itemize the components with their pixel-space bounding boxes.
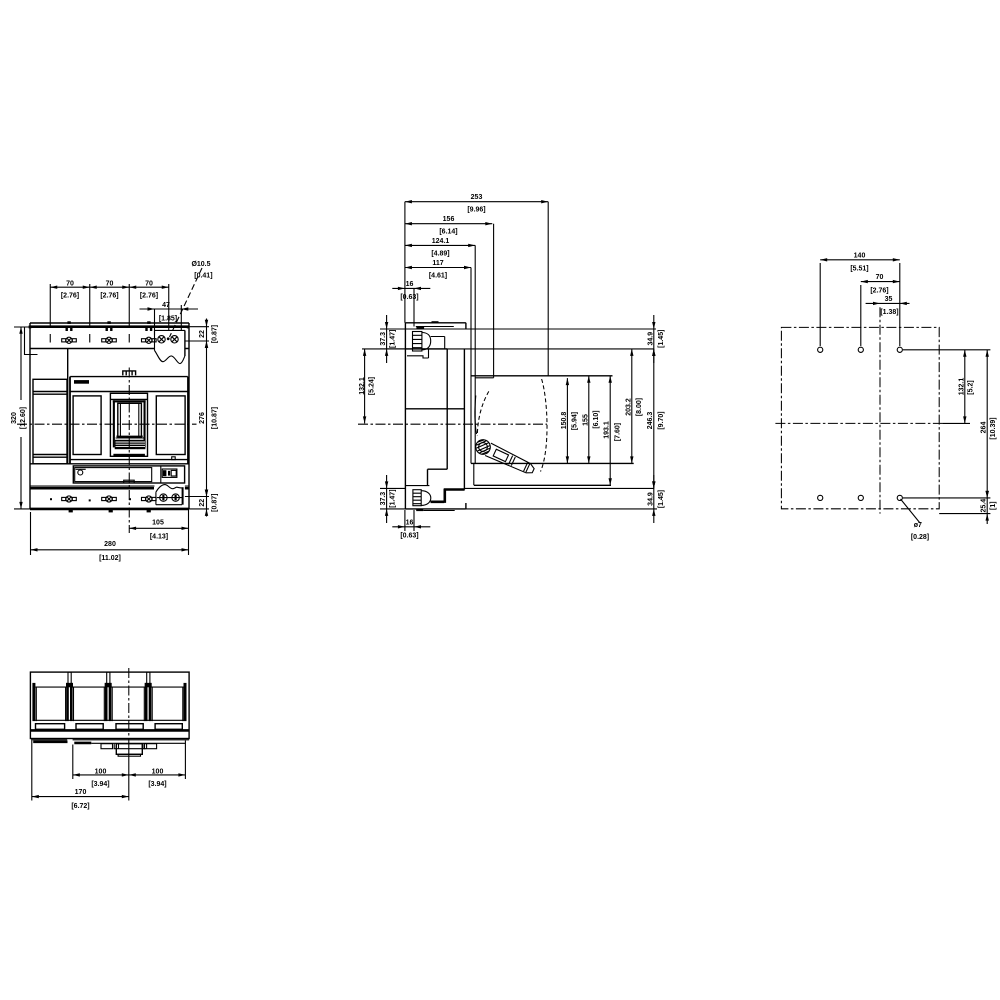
svg-text:[11.02]: [11.02] xyxy=(99,555,121,562)
svg-text:[1]: [1] xyxy=(990,501,997,510)
svg-text:[0.87]: [0.87] xyxy=(211,325,218,343)
svg-text:253: 253 xyxy=(471,194,483,201)
svg-text:100: 100 xyxy=(152,768,164,775)
svg-text:[3.94]: [3.94] xyxy=(148,781,166,788)
svg-text:156: 156 xyxy=(443,216,455,223)
svg-text:193.1: 193.1 xyxy=(604,421,611,439)
svg-text:ø7: ø7 xyxy=(914,522,922,529)
svg-text:[0.28]: [0.28] xyxy=(911,534,929,541)
svg-text:[1.85]: [1.85] xyxy=(159,315,177,322)
svg-text:34.9: 34.9 xyxy=(647,492,654,506)
svg-text:124.1: 124.1 xyxy=(432,238,450,245)
svg-text:25.4: 25.4 xyxy=(981,499,988,513)
svg-text:[2.76]: [2.76] xyxy=(140,292,158,299)
svg-text:[6.10]: [6.10] xyxy=(593,410,600,428)
svg-text:150.8: 150.8 xyxy=(561,412,568,430)
svg-text:16: 16 xyxy=(406,281,414,288)
svg-text:35: 35 xyxy=(885,296,893,303)
svg-text:70: 70 xyxy=(66,281,74,288)
svg-text:132.1: 132.1 xyxy=(359,377,366,395)
svg-text:[3.94]: [3.94] xyxy=(91,781,109,788)
svg-text:264: 264 xyxy=(981,422,988,434)
svg-text:[5.51]: [5.51] xyxy=(850,266,868,273)
svg-text:37.3: 37.3 xyxy=(380,492,387,506)
svg-text:[4.61]: [4.61] xyxy=(429,272,447,279)
svg-text:[9.96]: [9.96] xyxy=(467,207,485,214)
svg-text:117: 117 xyxy=(432,260,443,267)
svg-text:105: 105 xyxy=(152,519,164,526)
svg-text:[2.76]: [2.76] xyxy=(870,288,888,295)
svg-text:132.1: 132.1 xyxy=(958,378,965,396)
svg-text:100: 100 xyxy=(95,768,107,775)
svg-text:[5.24]: [5.24] xyxy=(369,377,376,395)
svg-text:[1.45]: [1.45] xyxy=(658,330,665,348)
svg-text:[4.13]: [4.13] xyxy=(150,533,168,540)
svg-text:[7.60]: [7.60] xyxy=(614,423,621,441)
svg-text:276: 276 xyxy=(199,412,206,424)
svg-text:70: 70 xyxy=(145,281,153,288)
svg-text:[1.47]: [1.47] xyxy=(389,330,396,348)
svg-text:37.3: 37.3 xyxy=(380,332,387,346)
svg-text:70: 70 xyxy=(876,274,884,281)
svg-text:[8.00]: [8.00] xyxy=(636,398,643,416)
svg-text:[1.47]: [1.47] xyxy=(389,489,396,507)
svg-text:16: 16 xyxy=(406,519,414,526)
svg-text:[10.39]: [10.39] xyxy=(990,417,997,439)
svg-text:170: 170 xyxy=(75,789,87,796)
svg-text:[10.87]: [10.87] xyxy=(211,407,218,429)
svg-text:155: 155 xyxy=(582,414,589,426)
svg-text:[4.89]: [4.89] xyxy=(431,250,449,257)
svg-text:[12.60]: [12.60] xyxy=(20,407,27,429)
svg-text:[6.72]: [6.72] xyxy=(71,803,89,810)
svg-text:22: 22 xyxy=(199,499,206,507)
svg-text:[0.63]: [0.63] xyxy=(400,294,418,301)
svg-text:[5.2]: [5.2] xyxy=(968,380,975,394)
svg-text:140: 140 xyxy=(854,252,866,259)
svg-text:34.9: 34.9 xyxy=(647,332,654,346)
svg-text:[2.76]: [2.76] xyxy=(61,292,79,299)
svg-text:246.3: 246.3 xyxy=(647,412,654,430)
svg-text:[0.63]: [0.63] xyxy=(400,533,418,540)
svg-text:[1.45]: [1.45] xyxy=(658,490,665,508)
svg-text:[2.76]: [2.76] xyxy=(100,292,118,299)
svg-text:[5.94]: [5.94] xyxy=(572,412,579,430)
svg-text:[0.87]: [0.87] xyxy=(211,494,218,512)
svg-text:280: 280 xyxy=(104,541,116,548)
svg-text:203.2: 203.2 xyxy=(625,398,632,416)
svg-text:[9.70]: [9.70] xyxy=(658,411,665,429)
svg-text:[6.14]: [6.14] xyxy=(439,229,457,236)
svg-text:22: 22 xyxy=(199,330,206,338)
svg-text:Ø10.5: Ø10.5 xyxy=(191,261,210,268)
svg-text:320: 320 xyxy=(11,412,18,424)
svg-text:70: 70 xyxy=(106,281,114,288)
svg-text:47: 47 xyxy=(162,302,170,309)
svg-text:[1.38]: [1.38] xyxy=(880,309,898,316)
